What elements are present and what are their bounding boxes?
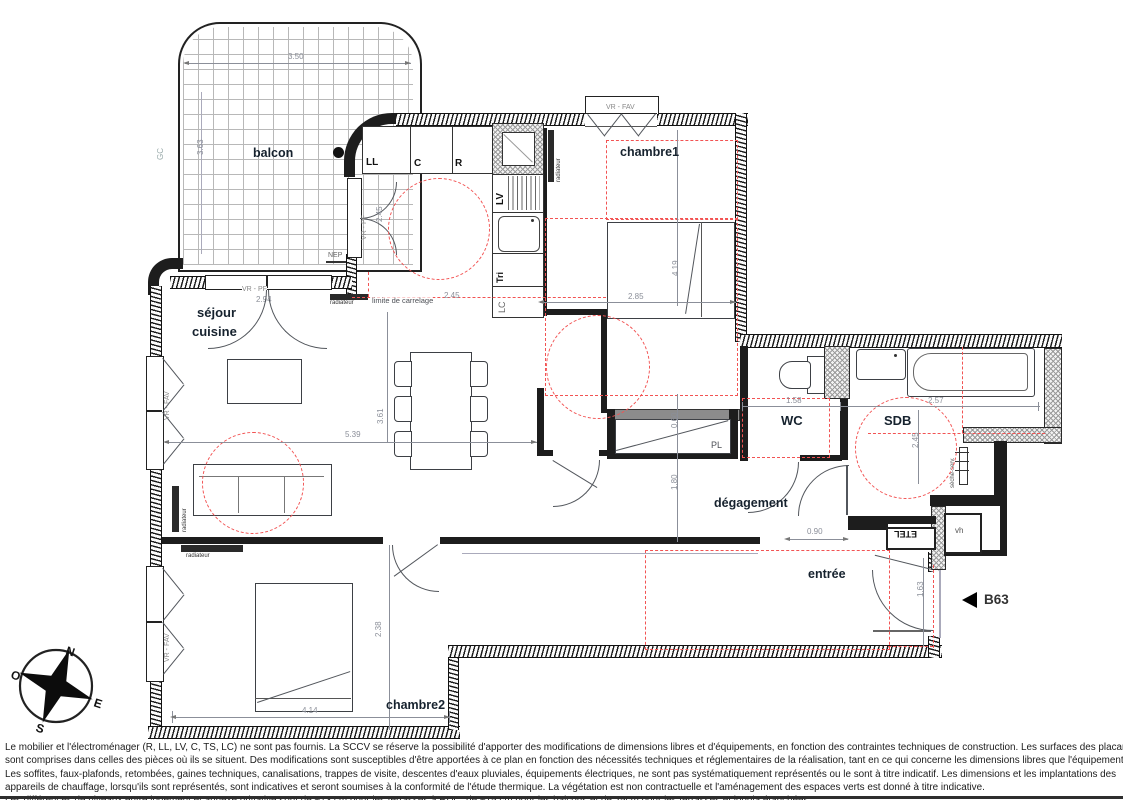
dim-arrow [183,61,189,65]
door-threshold [939,570,941,638]
label-etel: ETEL [894,529,917,539]
label-radiateur-3: radiateur [182,508,188,532]
dim-cuisine: 2.45 [375,206,384,222]
dim-balcony-height: 3.63 [196,139,205,155]
dim-chambre1-w: 2.85 [628,292,644,301]
room-label-sdb: SDB [884,413,911,428]
dimension-line [201,92,202,254]
wall [150,286,162,358]
label-window-vr-pf-kitchen: VR - PF [361,215,368,240]
dim-tick [840,402,841,411]
wall [170,276,208,289]
disclaimer-text: Le mobilier et l'électroménager (R, LL, … [5,741,1120,800]
dimension-line [185,63,411,64]
dimension-line [923,558,924,646]
disclaimer-line-1: Le mobilier et l'électroménager (R, LL, … [5,741,1120,754]
room-label-chambre1: chambre1 [620,145,679,159]
washbasin [856,349,906,380]
label-vh: vh [955,526,963,535]
dimension-line [172,717,450,718]
dimension-line [540,302,736,303]
label-radiateur-1: radiateur [330,300,354,306]
zone-wc [742,398,830,458]
label-r: R [455,158,462,169]
room-label-chambre2: chambre2 [386,698,445,712]
room-label-sejour: séjour [197,305,236,320]
chair [470,396,488,422]
dim-chambre1-h: 4.19 [671,260,680,276]
zone-entree [645,550,890,650]
radiator [172,486,179,532]
radiator [181,545,243,552]
room-label-cuisine: cuisine [192,324,237,339]
chair [394,396,412,422]
label-radiateur-4: radiateur [186,553,210,559]
door-leaf [846,465,848,515]
label-limite-carrelage: limite de carrelage [372,296,433,305]
room-label-degagement: dégagement [714,496,788,510]
chair [394,431,412,457]
lv-stripes [508,176,540,210]
room-label-wc: WC [781,413,803,428]
dim-arrow [784,537,790,541]
label-lv: LV [495,193,506,205]
dim-arrow [538,300,544,304]
turning-circle-kitchen [388,178,490,280]
dim-chambre2-h: 2.38 [374,621,383,637]
label-window-vr-fav-west1: VR - FAV [164,391,171,420]
dim-sdb-h: 2.45 [911,432,920,448]
washbasin-dot [894,354,897,357]
wall [740,334,1062,348]
dim-balcony-width: 3.50 [288,52,304,61]
chair [470,361,488,387]
wall [148,726,460,739]
dim-tick [1038,402,1039,411]
dim-arrow [843,537,849,541]
door-jamb [537,450,553,456]
window-chambre2-west [146,566,164,682]
wall [653,113,748,126]
disclaimer-line-4: appareils de chauffage, lorsqu'ils sont … [5,781,1120,794]
dimension-line [787,539,848,540]
dim-arrow [405,61,411,65]
unit-label: B63 [984,592,1009,607]
dim-arrow [163,440,169,444]
radiator [548,130,554,182]
unit-arrow-icon [962,592,977,608]
wall [162,537,383,544]
dim-sejour-h: 3.61 [376,408,385,424]
room-label-balcon: balcon [253,146,293,160]
dining-table [410,352,472,470]
disclaimer-line-2: sont comprises dans celles des pièces où… [5,754,1120,767]
dim-chambre2-w: 4.14 [302,706,318,715]
label-ll: LL [366,157,378,168]
disclaimer-line-3: Les soffites, faux-plafonds, retombées, … [5,768,1120,781]
zone-entree-right [933,565,934,648]
door-arc-sdb [798,465,849,516]
dim-arrow [730,300,736,304]
dim-carrelage: 2.45 [444,291,460,300]
chair [394,361,412,387]
dimension-line [387,312,388,442]
wall [848,516,936,524]
wall [930,495,1007,506]
wc-duct [824,346,850,399]
turning-circle-sofa [202,432,304,534]
wall [150,680,162,728]
dimension-line [165,442,537,443]
dim-arrow [444,715,450,719]
label-window-vr-fav-top: VR - FAV [606,104,635,111]
zone-sdb-v [962,347,963,433]
label-tri: Tri [495,272,505,283]
casement-line [162,568,184,594]
wall [150,468,162,568]
window-mullion [146,410,162,412]
room-label-entree: entrée [808,567,846,581]
wall [848,524,888,530]
casement-line [163,594,185,620]
compass-n: N [64,644,77,660]
wall [537,388,544,452]
wall [440,537,448,544]
limite-carrelage-tick [368,272,369,297]
dim-arrow [531,440,537,444]
dim-tick [742,402,743,411]
dim-arrow [170,715,176,719]
technical-shaft [963,427,1062,443]
dim-wc-w: 1.58 [786,396,802,405]
towel-dryer-tick [955,452,969,453]
zone-entree-bottom [888,646,933,647]
wall [448,537,760,544]
label-placard: PL [711,440,722,450]
label-lc: LC [497,301,507,313]
cooktop-dot [531,219,534,222]
zone-sdb-h [868,433,1045,434]
wall [1000,506,1007,554]
towel-dryer-tick [955,470,969,471]
bed-chambre2 [255,583,353,712]
toilet-bowl [779,361,811,389]
bathtub-inner [913,353,1028,391]
chair [470,431,488,457]
dim-entree-h: 1.63 [916,581,925,597]
dim-degagement: 1.80 [670,474,679,490]
wall [994,441,1007,503]
page-bottom-border [0,796,1123,799]
dim-passage: 0.90 [807,527,823,536]
compass-rose: N O E S [8,636,108,736]
window-mullion [146,621,162,623]
door-arc-chambre2 [392,545,439,592]
zone-chambre1-lower [545,218,738,396]
label-nep: NEP [328,252,342,259]
label-c: C [414,158,421,169]
door-arc-sejour-balcony [268,290,327,349]
wall [928,636,940,658]
window-sejour [205,275,332,290]
dim-placard: 0.60 [670,412,679,428]
floor-plan-page: 3.50 3.63 GC balcon NEP PL [0,0,1123,800]
balcony-wall-dot [333,147,344,158]
dimension-line [742,406,1040,407]
towel-dryer-tick [955,461,969,462]
coffee-table [227,359,302,404]
dim-sejour-w: 5.39 [345,430,361,439]
label-window-vr-fav-west2: VR - FAV [164,633,171,662]
compass-e: E [92,696,104,712]
compass-s: S [34,721,46,736]
dim-sdb-w: 2.57 [928,396,944,405]
label-radiateur-2: radiateur [556,158,562,182]
casement-line [162,358,184,384]
label-gc: GC [156,148,165,160]
